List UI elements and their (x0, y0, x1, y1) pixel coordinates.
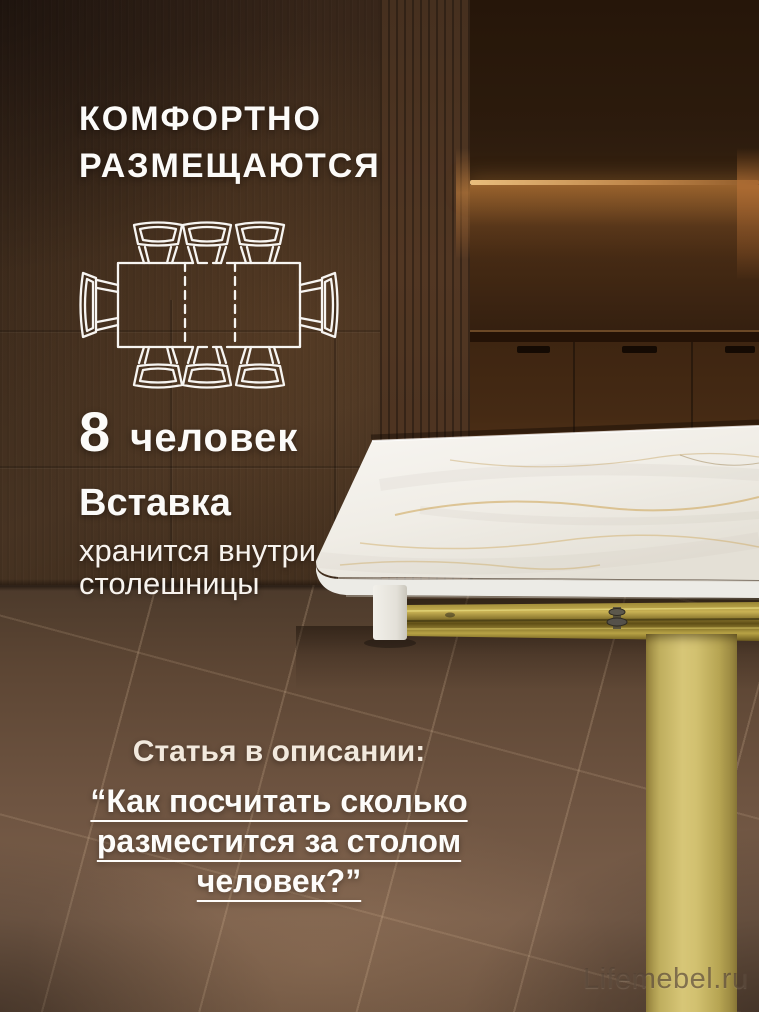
chair-icon (300, 273, 338, 337)
capacity-callout: 8 человек (79, 399, 298, 464)
watermark: Lifemebel.ru (583, 963, 749, 996)
capacity-label: человек (130, 416, 298, 461)
chair-icon (134, 347, 182, 388)
chair-icon (81, 273, 119, 337)
cabinet-handle (517, 346, 550, 353)
gold-table-leg (646, 634, 737, 1012)
capacity-number: 8 (79, 399, 110, 464)
light-glow (470, 185, 759, 260)
cabinet-side-light (737, 148, 759, 280)
kitchen-background (470, 0, 759, 445)
chair-icon (183, 223, 231, 264)
marble-tabletop (316, 426, 759, 580)
quote-line-1: “Как посчитать сколько (29, 781, 529, 821)
quote-line-3: человек?” (29, 861, 529, 901)
insert-dashed-outline (185, 263, 235, 347)
insert-subtitle: хранится внутри столешницы (79, 534, 316, 600)
title-line-1: КОМФОРТНО (79, 96, 381, 143)
insert-subtitle-line-2: столешницы (79, 567, 316, 600)
chair-icon (134, 223, 182, 264)
cabinet-handle (622, 346, 657, 353)
chair-icon (183, 347, 231, 388)
seating-diagram-icon (60, 211, 350, 396)
insert-note: Вставка хранится внутри столешницы (79, 482, 316, 600)
insert-subtitle-line-1: хранится внутри (79, 534, 316, 567)
panel-light-glow (456, 148, 470, 260)
article-quote: “Как посчитать сколько разместится за ст… (29, 781, 529, 901)
quote-line-2: разместится за столом (29, 821, 529, 861)
page-title: КОМФОРТНО РАЗМЕЩАЮТСЯ (79, 96, 381, 190)
insert-title: Вставка (79, 482, 316, 525)
countertop-edge (470, 330, 759, 342)
product-infographic: КОМФОРТНО РАЗМЕЩАЮТСЯ 8 человек Вставка … (0, 0, 759, 1012)
title-line-2: РАЗМЕЩАЮТСЯ (79, 143, 381, 190)
article-callout: Статья в описании: “Как посчитать скольк… (29, 735, 529, 901)
article-lead: Статья в описании: (29, 735, 529, 769)
table-outline (118, 263, 300, 347)
upper-cabinets (470, 0, 759, 181)
chair-icon (236, 347, 284, 388)
cabinet-handle (725, 346, 755, 353)
chair-icon (236, 223, 284, 264)
